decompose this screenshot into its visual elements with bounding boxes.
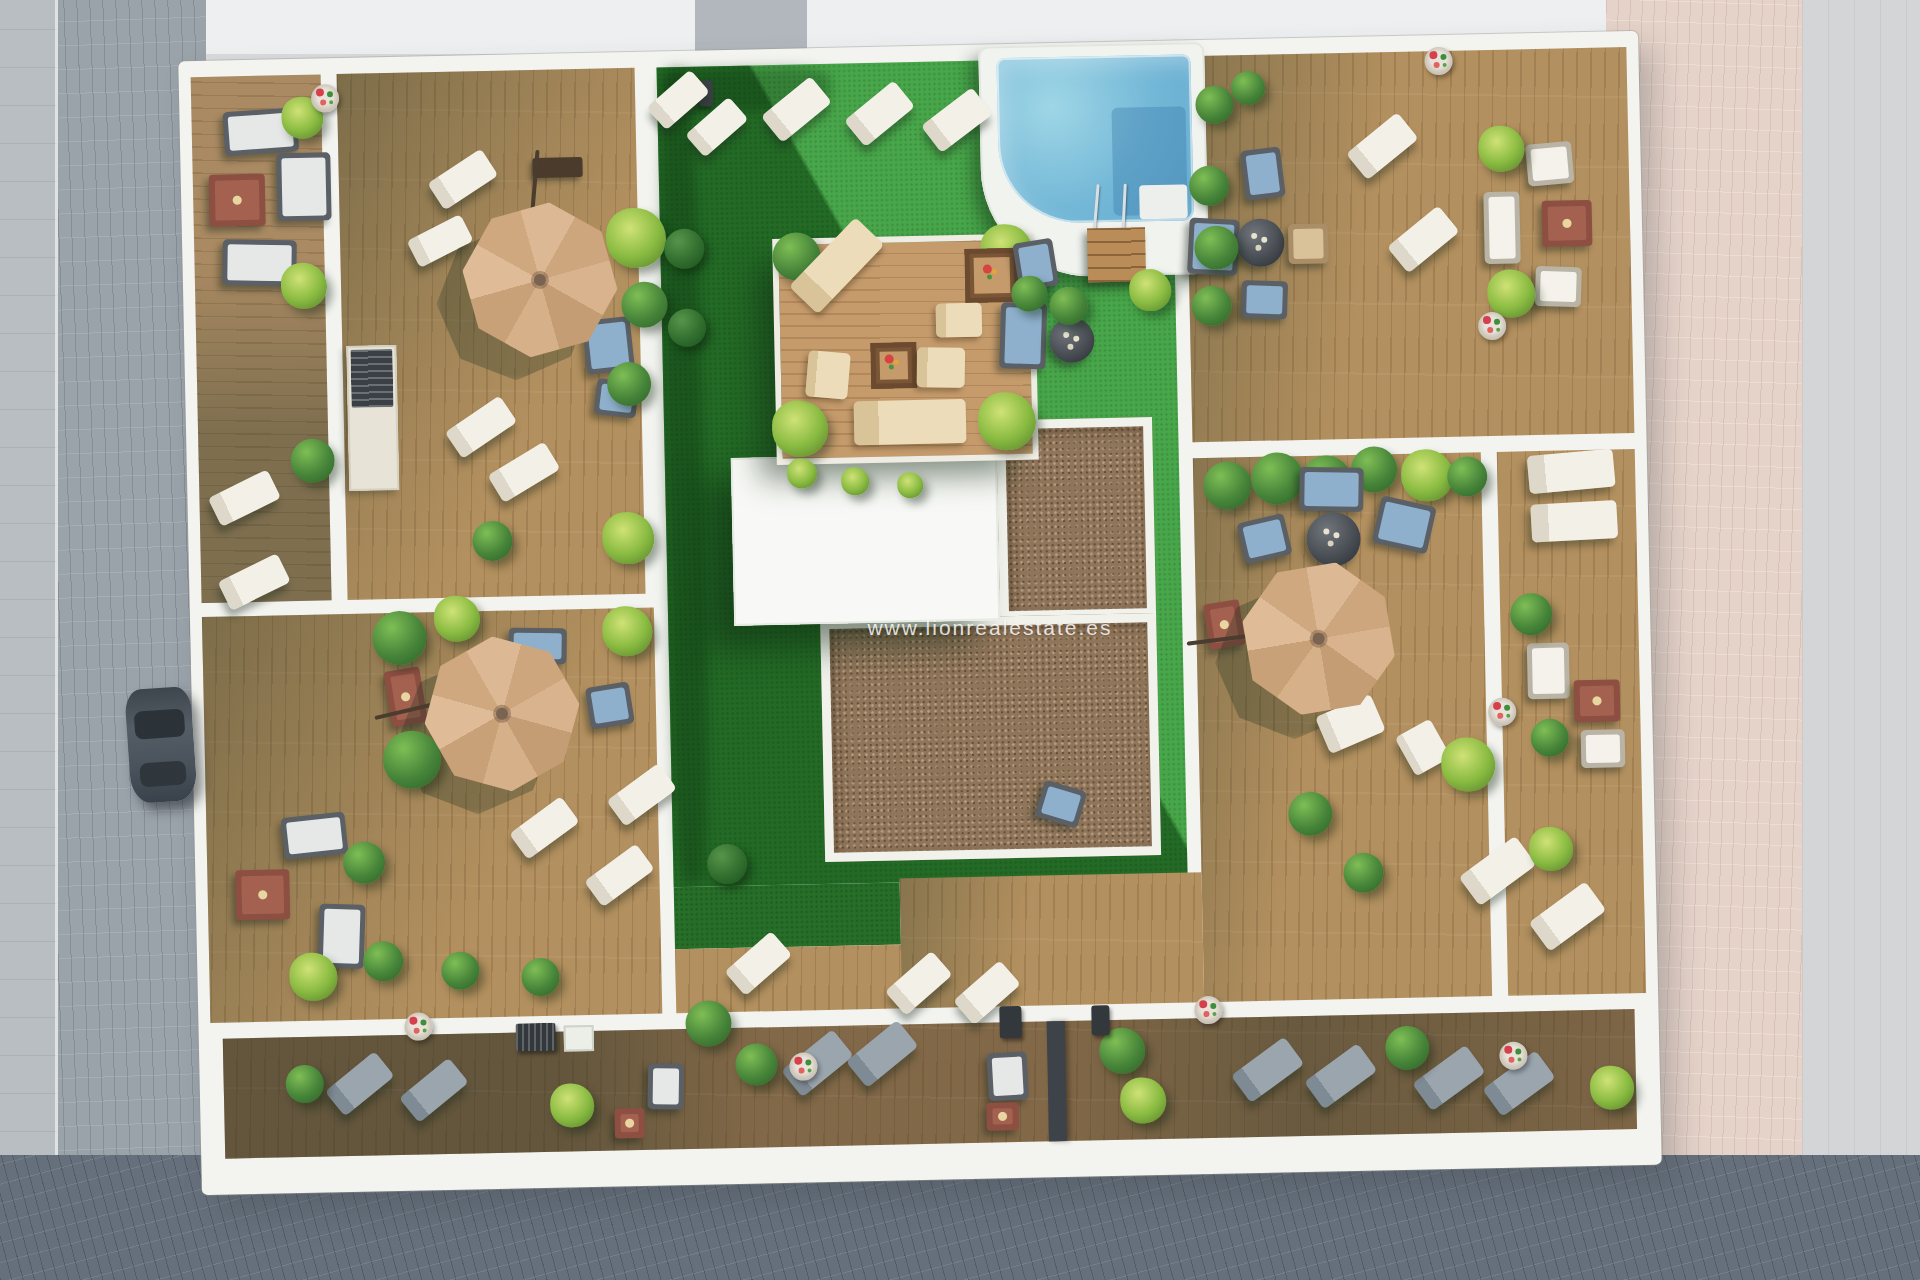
pool-ledge — [1139, 184, 1188, 219]
white-armchair — [1525, 141, 1575, 187]
blue-armchair — [1240, 146, 1286, 201]
wicker-armchair — [1288, 223, 1329, 264]
palm-plant — [1529, 826, 1574, 871]
shrub-plant — [607, 362, 652, 407]
palm-plant — [602, 606, 653, 657]
fire-table — [209, 174, 266, 227]
central-wood-platform — [778, 240, 1032, 459]
flower-shrub — [787, 458, 818, 489]
flower-shrub — [841, 467, 870, 496]
fire-table — [1574, 679, 1621, 722]
deck-bottom-right-extension — [900, 872, 1205, 1008]
balcony-divider-wall — [1047, 1021, 1068, 1141]
outdoor-sofa — [276, 152, 331, 221]
palm-plant — [772, 400, 829, 457]
sun-lounger — [1527, 449, 1616, 495]
white-sofa — [1483, 191, 1521, 264]
blue-sofa — [1299, 467, 1364, 512]
bbq-grill — [999, 1006, 1022, 1038]
pavement-right-grey — [1802, 0, 1920, 1155]
wall-bench — [532, 157, 582, 178]
lawn-strip-bottom — [674, 882, 901, 949]
palm-plant — [1441, 737, 1496, 792]
palm-plant — [289, 952, 338, 1001]
sun-lounger — [1530, 500, 1618, 543]
palm-plant — [1129, 269, 1172, 312]
deck-seat — [936, 303, 983, 338]
flower-pot — [311, 84, 340, 113]
terrace-bottom-left-deck — [202, 608, 662, 1023]
outdoor-kitchen-counter — [346, 345, 399, 491]
palm-plant — [977, 392, 1036, 451]
fire-table — [986, 1102, 1019, 1131]
palm-plant — [1478, 125, 1525, 172]
fire-table — [235, 869, 290, 920]
fire-table — [614, 1108, 645, 1139]
white-armchair — [1581, 729, 1626, 768]
outdoor-sofa — [280, 811, 348, 860]
aerial-render-scene: www.lionrealestate.es — [0, 0, 1920, 1280]
white-sofa — [1527, 642, 1570, 699]
deck-seat — [805, 350, 851, 399]
planter-box — [870, 342, 917, 389]
building-roof-plan — [178, 31, 1661, 1195]
palm-plant — [1401, 449, 1454, 502]
bbq-grill — [1091, 1005, 1110, 1035]
palm-plant — [550, 1083, 595, 1128]
blue-armchair — [585, 681, 635, 729]
white-armchair — [1535, 266, 1582, 307]
outdoor-sofa — [648, 1063, 685, 1109]
watermark-text: www.lionrealestate.es — [820, 616, 1160, 640]
palm-plant — [1487, 269, 1536, 318]
palm-plant — [605, 207, 666, 268]
bbq-grill — [516, 1023, 557, 1052]
palm-plant — [602, 512, 655, 565]
sidewalk-left — [0, 0, 58, 1170]
palm-plant — [1590, 1065, 1635, 1110]
parked-car — [124, 686, 198, 804]
blue-armchair — [1241, 280, 1288, 319]
palm-plant — [434, 595, 481, 642]
flower-shrub — [897, 472, 924, 499]
deck-sofa — [854, 399, 967, 445]
palm-plant — [281, 262, 328, 309]
fire-table — [1542, 200, 1593, 247]
blue-sofa — [999, 302, 1047, 369]
roof-vent-box — [564, 1025, 595, 1052]
gravel-roof-horizontal — [820, 613, 1161, 862]
palm-plant — [1120, 1077, 1167, 1124]
outdoor-sofa — [986, 1051, 1029, 1101]
deck-seat — [917, 347, 966, 388]
